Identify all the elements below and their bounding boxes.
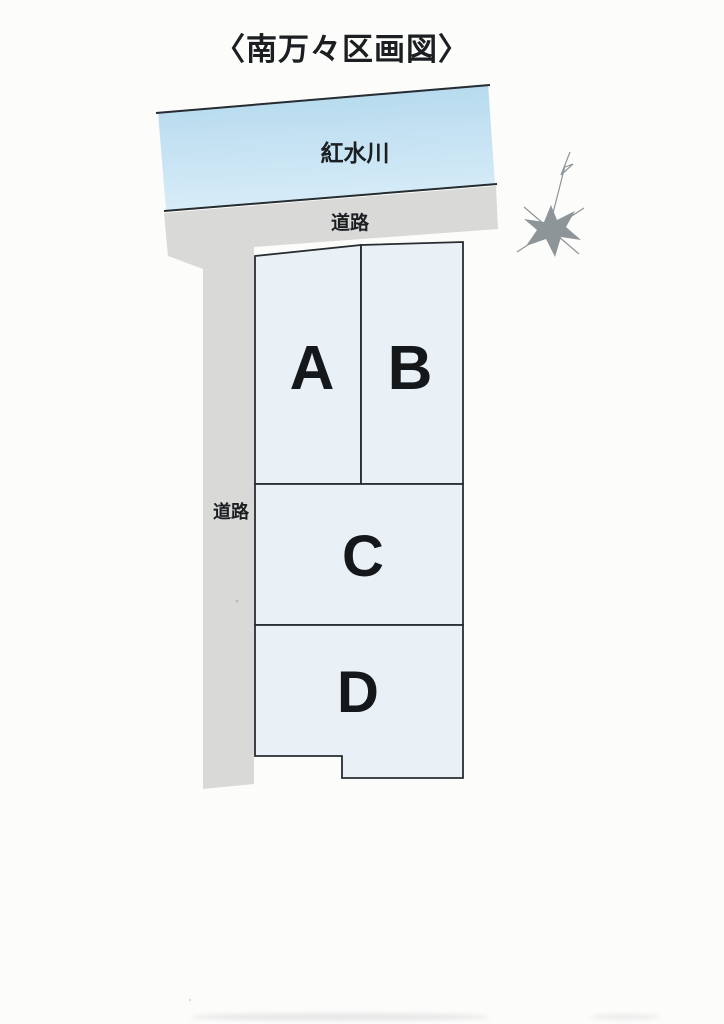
scan-speck [189,999,191,1001]
north-mark-pennant [561,152,573,175]
parcel-a-label: A [290,334,335,403]
parcel-b-label: B [388,334,433,403]
road-left-label: 道路 [213,501,250,522]
scan-smudge-streak [190,1013,490,1021]
scan-speck [236,600,239,603]
parcel-map-canvas: 〈南万々区画図〉 紅水川 道路 道路 A B C D [0,0,724,1024]
page-title: 〈南万々区画図〉 [214,32,470,67]
scanned-parcel-map-page: 〈南万々区画図〉 紅水川 道路 道路 A B C D [0,0,724,1024]
north-mark-icon [517,152,584,257]
river-label: 紅水川 [321,140,390,166]
parcel-c-label: C [342,524,384,589]
parcel-d-label: D [337,660,379,725]
road-top-label: 道路 [331,211,370,234]
scan-smudge-streak [590,1014,660,1020]
